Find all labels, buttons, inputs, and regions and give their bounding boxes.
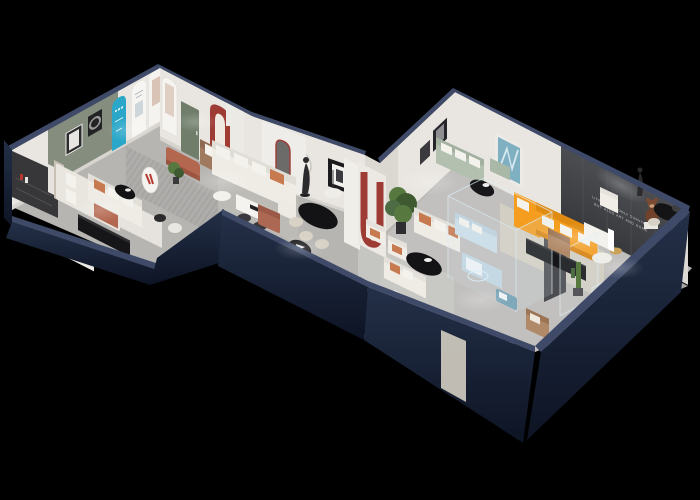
wall-left-cap <box>4 140 12 226</box>
white-pillar <box>344 158 360 250</box>
floorplan-render: LIFE IS NOT ONLY SURVIVAL BUT ALSO ART A… <box>0 0 700 500</box>
poster-2-figure <box>152 76 160 107</box>
woman-poster <box>165 83 174 118</box>
dome-pendant-lamp <box>324 188 342 198</box>
cream-chair-1 <box>289 217 303 227</box>
